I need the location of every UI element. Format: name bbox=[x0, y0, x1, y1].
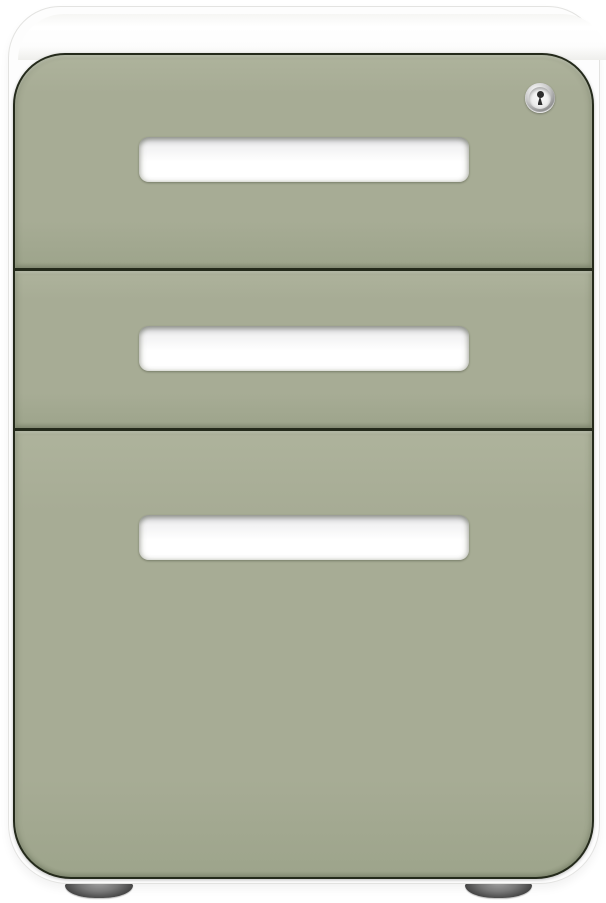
lock-face bbox=[529, 87, 551, 109]
drawer-bottom bbox=[15, 431, 592, 877]
drawer-stack bbox=[13, 53, 594, 879]
drawer-top bbox=[15, 55, 592, 268]
product-photo-scene bbox=[0, 0, 606, 903]
drawer-handle-top bbox=[139, 137, 469, 182]
drawer-middle bbox=[15, 271, 592, 428]
drawer-handle-middle bbox=[139, 326, 469, 371]
drawer-handle-bottom bbox=[139, 515, 469, 560]
keyhole-lock-icon bbox=[525, 83, 555, 113]
